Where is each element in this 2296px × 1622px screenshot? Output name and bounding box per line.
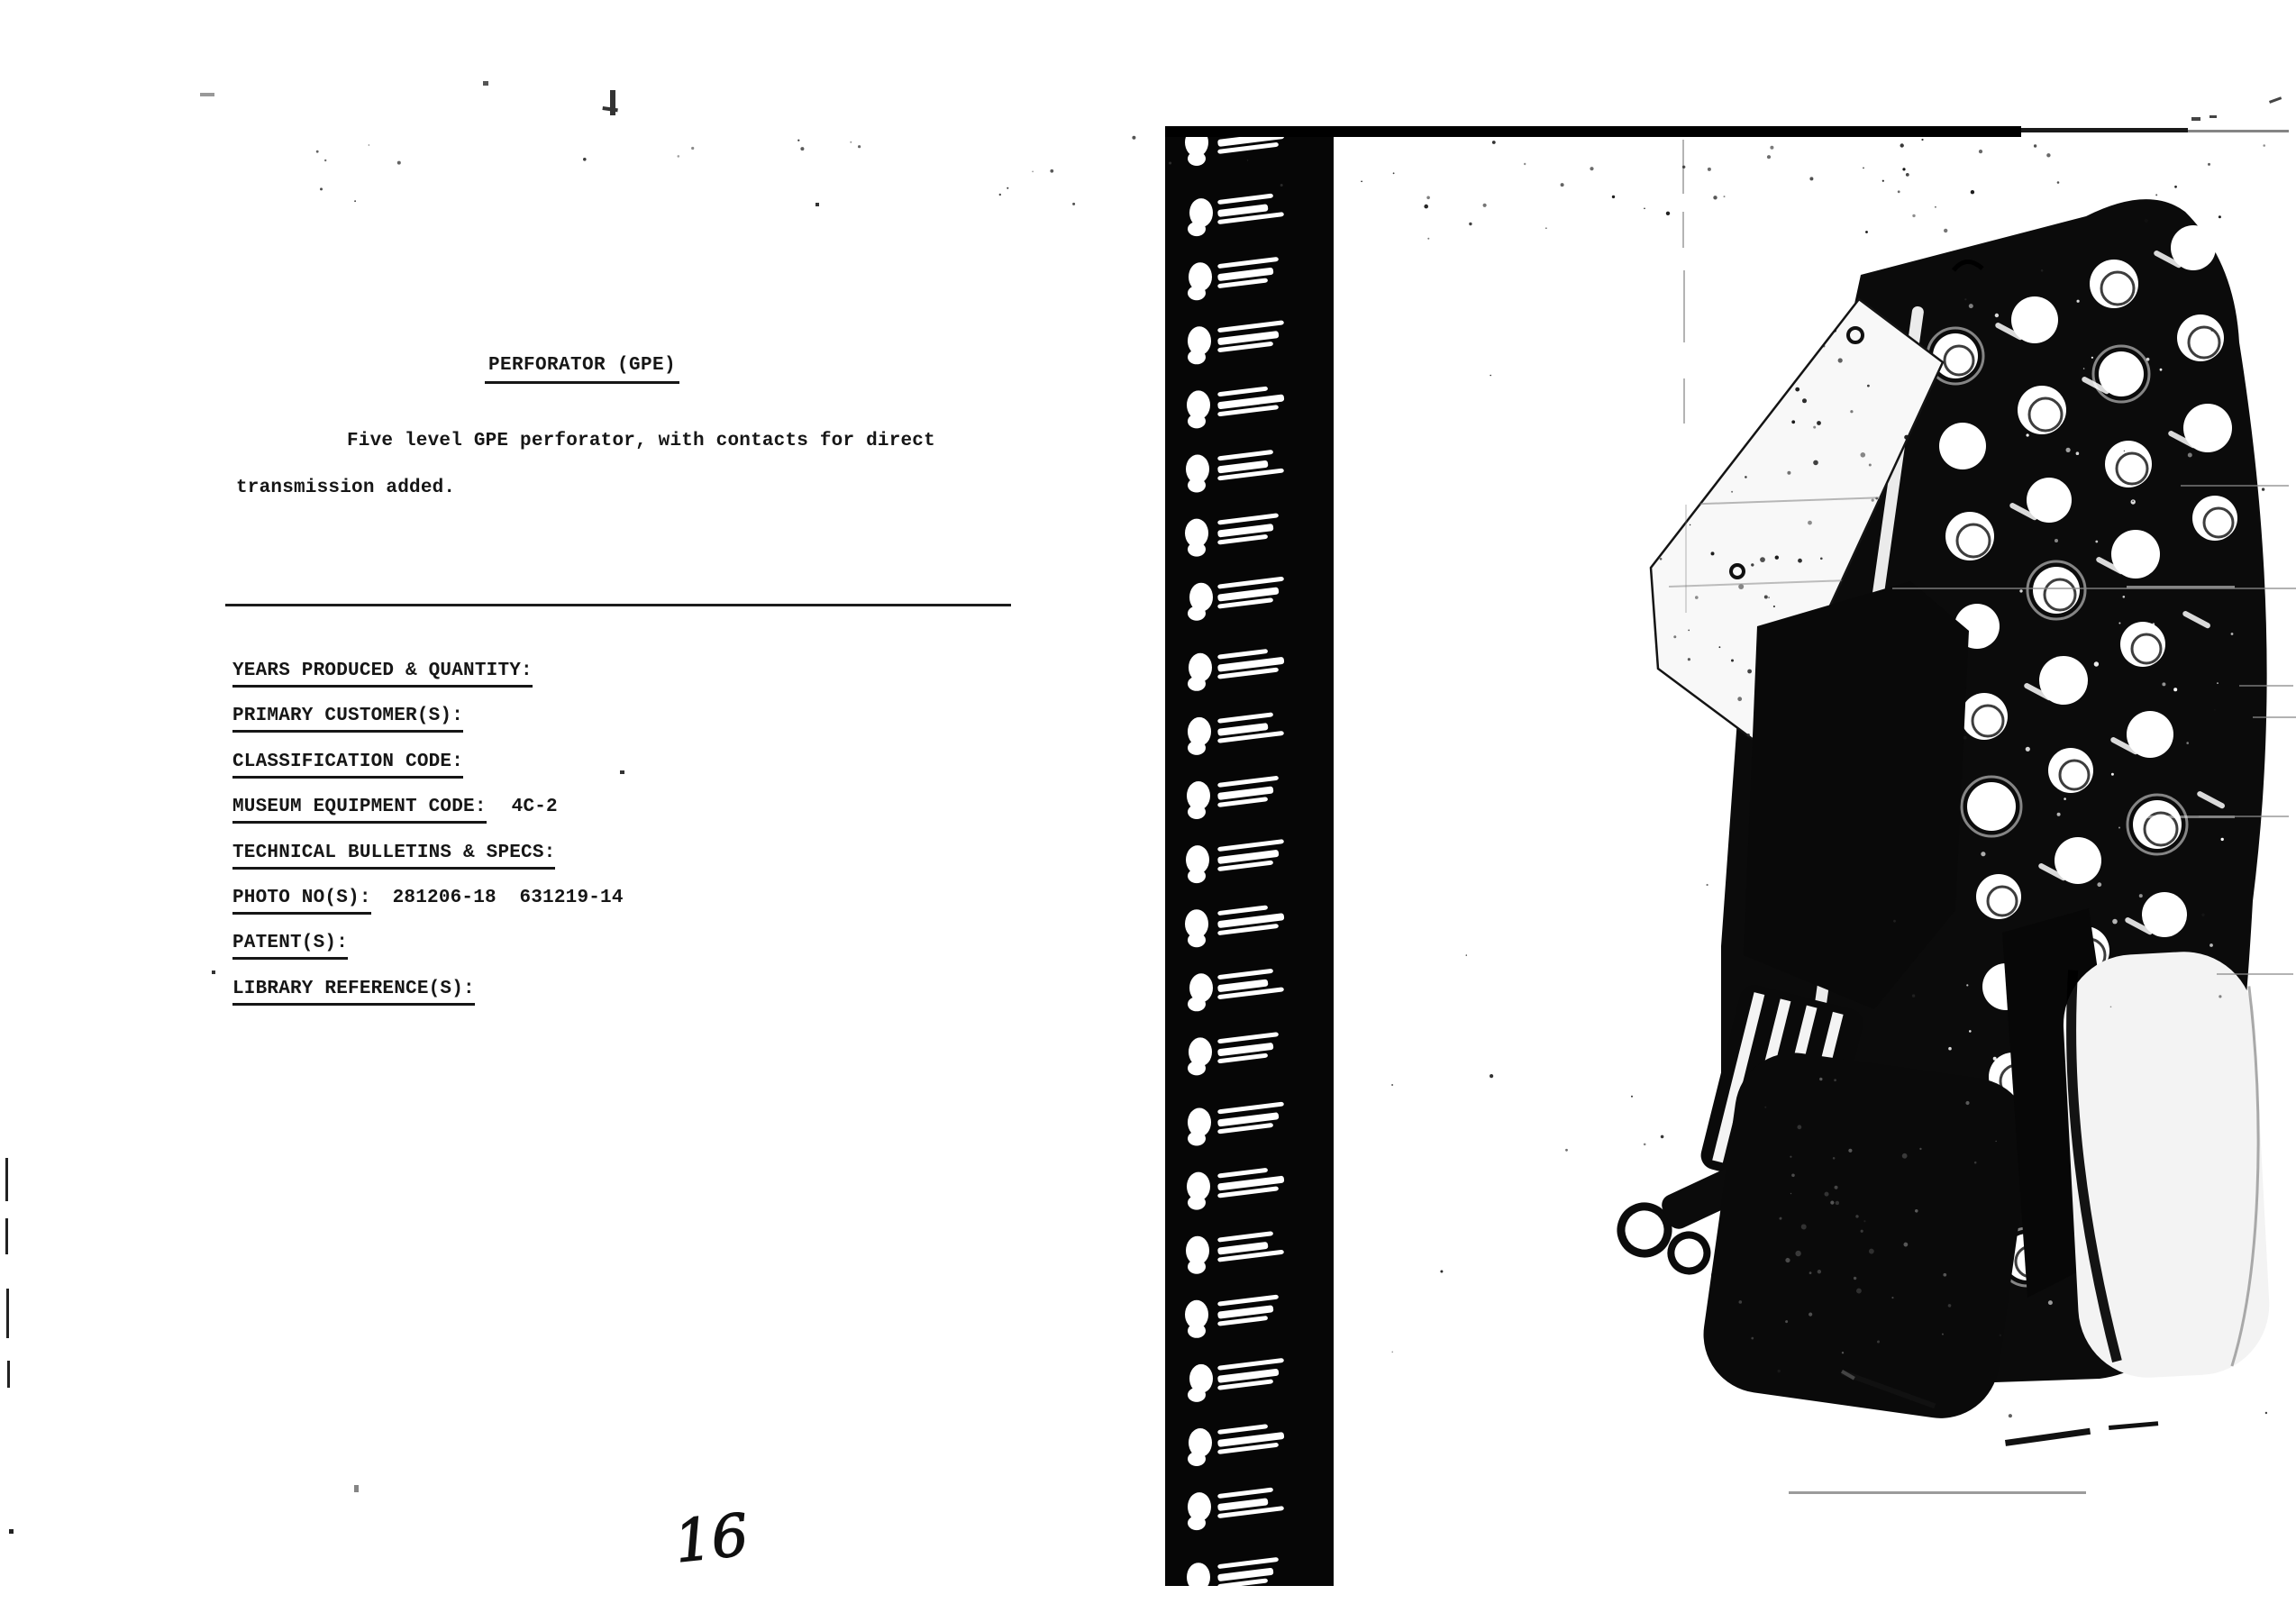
field-row-years: YEARS PRODUCED & QUANTITY: (232, 661, 624, 706)
field-row-patents: PATENT(S): (232, 933, 624, 978)
page-edge-dashes (5, 1158, 14, 1534)
page-title: PERFORATOR (GPE) (485, 355, 679, 384)
photo-base-foot-light (2060, 948, 2273, 1381)
page-number-text: 16 (671, 1502, 752, 1576)
field-label: LIBRARY REFERENCE(S): (232, 979, 475, 1006)
field-label: MUSEUM EQUIPMENT CODE: (232, 797, 487, 824)
field-row-classification: CLASSIFICATION CODE: (232, 752, 624, 797)
scan-noise-band-left (316, 136, 1283, 205)
spec-field-list: YEARS PRODUCED & QUANTITY: PRIMARY CUSTO… (232, 661, 624, 1024)
photo-scratch (2127, 586, 2235, 588)
field-label: YEARS PRODUCED & QUANTITY: (232, 661, 533, 688)
description-paragraph: Five level GPE perforator, with contacts… (236, 418, 1034, 512)
photo-base-foot-dark (1696, 1045, 2038, 1426)
field-row-museum-code: MUSEUM EQUIPMENT CODE:4C-2 (232, 797, 624, 842)
field-label: PHOTO NO(S): (232, 888, 371, 915)
page-title-text: PERFORATOR (GPE) (485, 355, 679, 384)
equipment-photo (1334, 0, 2296, 1622)
field-row-library: LIBRARY REFERENCE(S): (232, 979, 624, 1024)
field-value: 4C-2 (512, 797, 558, 817)
field-value: 281206-18 631219-14 (393, 888, 624, 908)
scanned-catalog-spread: { "document": { "title": "PERFORATOR (GP… (0, 0, 2296, 1622)
separator-rule (225, 604, 1011, 606)
field-label: TECHNICAL BULLETINS & SPECS: (232, 843, 555, 870)
photo-stray-mark (2109, 1421, 2158, 1430)
handwritten-page-number: 16 (669, 1499, 777, 1599)
field-row-bulletins: TECHNICAL BULLETINS & SPECS: (232, 843, 624, 888)
field-label: PRIMARY CUSTOMER(S): (232, 706, 463, 733)
photo-scratch (2145, 816, 2235, 818)
field-row-customer: PRIMARY CUSTOMER(S): (232, 706, 624, 751)
photo-stray-mark (2005, 1428, 2091, 1446)
field-label: PATENT(S): (232, 933, 348, 960)
field-label: CLASSIFICATION CODE: (232, 752, 463, 779)
field-row-photo-numbers: PHOTO NO(S):281206-18 631219-14 (232, 888, 624, 933)
spiral-binding-strip (1165, 128, 1334, 1586)
